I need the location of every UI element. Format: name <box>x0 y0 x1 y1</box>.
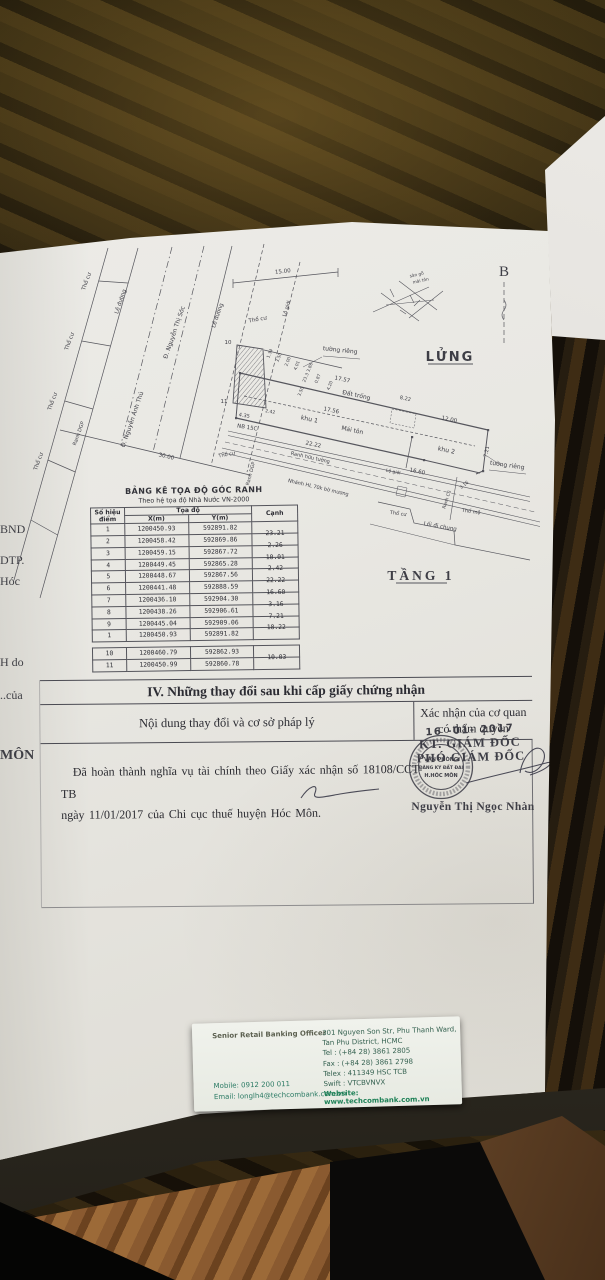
dimension: 2.00 <box>283 356 292 367</box>
area-label: Đất trống <box>342 389 372 402</box>
street-label: Đ. Nguyễn Ánh Thủ <box>120 391 146 449</box>
boundary-label: Ranh DGP <box>72 421 86 447</box>
dimension: 1.34 <box>265 348 274 359</box>
road-edge-label: Lề đường <box>112 288 128 315</box>
section-iv-left-header: Nội dung thay đổi và cơ sở pháp lý <box>40 702 413 743</box>
dimension: 3.16 <box>459 480 471 491</box>
coordinate-table-extra: 101200460.79592862.93 111200450.99592860… <box>92 645 300 672</box>
road-edge-label: Lề đường <box>209 302 225 329</box>
land-use-label: Thổ cư <box>247 314 268 324</box>
land-use-label: Thổ cư <box>388 509 407 519</box>
card-mobile: Mobile: 0912 200 011 <box>213 1080 290 1090</box>
land-use-label: Thổ mộ <box>460 507 481 517</box>
dimension: 15.00 <box>275 268 292 276</box>
point-number: 10 <box>225 340 232 346</box>
dimension: 8.22 <box>399 395 411 403</box>
dimension: 17.56 <box>323 406 340 415</box>
dimension: 2.42 <box>265 408 276 416</box>
margin-fragment: MÔN <box>0 748 34 764</box>
margin-fragment: DTP. <box>0 553 24 568</box>
dimension: 23.3 3.86 <box>301 362 314 384</box>
point-number: 11 <box>221 399 228 405</box>
wall-label: tường riêng <box>322 345 358 356</box>
margin-fragment: BND <box>0 522 25 537</box>
table-row: 111200450.99592860.7810.03 <box>93 657 300 672</box>
business-card: Senior Retail Banking Officer Mobile: 09… <box>192 1016 462 1111</box>
section-iv-right-header: Xác nhận của cơ quan có thẩm quyền <box>413 701 532 740</box>
dimension: 22.22 <box>305 440 322 449</box>
road-limit-label: Lộ giới <box>385 467 401 477</box>
land-use-label: Thổ cư <box>63 331 76 352</box>
inset-label: sàn gỗ <box>409 270 425 280</box>
dimension: 16.60 <box>409 467 426 476</box>
parcel-code: NB 15C <box>237 423 258 432</box>
card-website: Website: www.techcombank.com.vn <box>324 1086 462 1106</box>
coordinate-table-block: BẢNG KÊ TỌA ĐỘ GÓC RANH Theo hệ tọa độ N… <box>81 484 310 672</box>
table-row: 11200450.93592891.8218.22 <box>92 627 299 642</box>
floor-label-tang1: TẦNG 1 <box>387 568 454 583</box>
margin-fragment: Hóc <box>0 574 20 589</box>
north-indicator: B <box>499 264 509 280</box>
zone-label: khu 2 <box>437 445 455 455</box>
section-iv: IV. Những thay đổi sau khi cấp giấy chứn… <box>39 676 534 908</box>
floor-label-lung: LỬNG <box>426 348 475 365</box>
dimension: 3.50 <box>274 352 283 363</box>
path-label: Lối đi chung <box>423 520 457 533</box>
dimension: 17.57 <box>334 375 351 384</box>
section-iv-body: Đã hoàn thành nghĩa vụ tài chính theo Gi… <box>41 740 534 908</box>
card-title: Senior Retail Banking Officer <box>212 1029 326 1040</box>
dimension: 0.87 <box>313 373 322 384</box>
land-use-label: Thổ cư <box>32 451 45 472</box>
dimension: 7.21 <box>483 446 491 458</box>
boundary-label: Ranh Cũ <box>441 490 453 510</box>
land-use-label: Thổ cư <box>80 271 93 292</box>
land-use-label: Thổ cư <box>217 449 237 459</box>
inset-label: mái tôn <box>412 275 430 285</box>
dimension: 3.50 <box>296 386 305 397</box>
margin-fragment: H do <box>0 655 24 670</box>
col-header-point: Số hiệu điểm <box>91 507 125 524</box>
dimension: 12.00 <box>441 415 458 424</box>
margin-fragment: ..của <box>0 688 23 703</box>
boundary-label: Ranh DGP <box>245 461 257 486</box>
dimension: 4.35 <box>238 412 250 420</box>
wall-label: tường riêng <box>490 460 526 472</box>
tax-note: Đã hoàn thành nghĩa vụ tài chính theo Gi… <box>41 741 434 827</box>
card-address-block: 301 Nguyen Son Str, Phu Thanh Ward, Tan … <box>322 1024 458 1089</box>
boundary-label: Ranh hữu tường <box>290 450 331 465</box>
dimension: 30.00 <box>158 452 175 462</box>
col-header-edge: Cạnh <box>252 505 298 522</box>
land-use-label: Thổ cư <box>46 391 59 412</box>
coordinate-table: Số hiệu điểm Tọa độ Cạnh X(m) Y(m) 11200… <box>90 505 300 643</box>
dimension: 4.01 <box>292 360 301 371</box>
roof-label: Mái tôn <box>341 425 364 437</box>
road-limit-label: Lộ giới <box>281 300 293 318</box>
dimension: 4.20 <box>325 380 334 391</box>
street-label: Đ. Nguyễn Thị Sóc <box>162 305 187 360</box>
photo-scene: BND DTP. Hóc H do ..của MÔN BẢNG KÊ TỌA … <box>0 0 605 1280</box>
zone-label: khu 1 <box>300 414 318 424</box>
